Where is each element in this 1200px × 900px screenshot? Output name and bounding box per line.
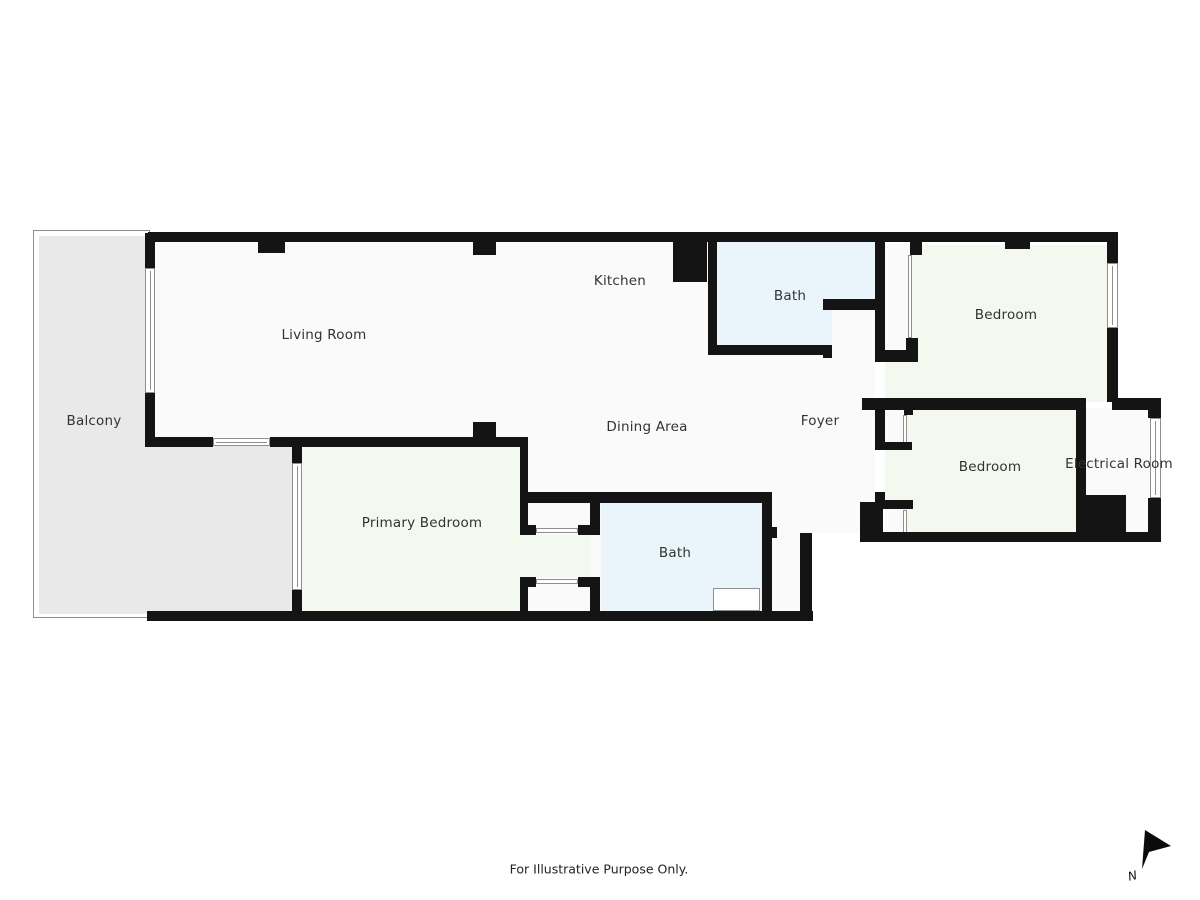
floor-bath-alcove (832, 310, 875, 362)
disclaimer-text: For Illustrative Purpose Only. (510, 862, 689, 877)
closet-front (903, 415, 907, 443)
north-arrow: N (1122, 822, 1182, 886)
room-label-balcony: Balcony (67, 413, 122, 429)
wall-segment (904, 500, 913, 509)
wall-segment (673, 235, 707, 282)
room-label-kitchen: Kitchen (594, 273, 646, 289)
room-fill-bedroom-1 (885, 245, 1107, 402)
room-label-foyer: Foyer (801, 413, 839, 429)
wall-segment (148, 232, 1118, 242)
door-balcony-slider (213, 438, 270, 446)
window-living-room-balcony (145, 268, 155, 393)
balcony-fill-extension (148, 446, 293, 612)
room-label-bedroom-2: Bedroom (959, 459, 1021, 475)
window-pane-line (216, 442, 267, 443)
wall-segment (473, 242, 496, 255)
closet-bedroom-2-bottom (885, 507, 905, 533)
bath-fixture (713, 588, 760, 611)
wall-segment (145, 233, 155, 268)
closet-front (908, 255, 912, 338)
wall-segment (823, 345, 832, 358)
room-label-living-room: Living Room (281, 327, 366, 343)
wall-segment (1005, 242, 1030, 249)
wall-segment (767, 527, 777, 538)
room-label-dining-area: Dining Area (606, 419, 687, 435)
wall-segment (708, 345, 832, 355)
room-label-primary-bedroom: Primary Bedroom (362, 515, 483, 531)
wall-segment (1112, 398, 1158, 410)
wall-segment (522, 577, 536, 587)
wall-segment (522, 525, 536, 535)
wall-segment (145, 393, 155, 438)
wall-segment (906, 338, 918, 362)
wall-segment (578, 577, 597, 587)
window-pane-line (297, 466, 298, 587)
wall-segment (145, 437, 213, 447)
north-arrow-glyph (1142, 830, 1171, 869)
wall-segment (292, 437, 528, 447)
wall-segment (522, 492, 772, 503)
wall-segment (473, 422, 496, 437)
wall-segment (708, 242, 717, 355)
closet-bedroom-2-top (885, 408, 905, 443)
wall-segment (292, 447, 302, 463)
room-label-bath-bottom: Bath (659, 545, 691, 561)
window-primary-bedroom-balcony (292, 463, 302, 590)
wall-segment (578, 525, 597, 535)
room-label-bath-top: Bath (774, 288, 806, 304)
wall-segment (875, 242, 885, 362)
wall-segment (1076, 495, 1126, 535)
wall-segment (875, 442, 912, 450)
floor-plan-canvas: For Illustrative Purpose Only. N Balcony… (0, 0, 1200, 900)
wall-segment (904, 405, 913, 415)
closet-front (536, 528, 578, 533)
wall-segment (910, 242, 922, 255)
window-pane-line (1112, 266, 1113, 325)
wall-segment (147, 611, 813, 621)
room-label-electrical-room: Electrical Room (1065, 456, 1173, 472)
closet-front (903, 510, 907, 533)
wall-segment (520, 437, 528, 535)
window-bedroom-1 (1107, 263, 1118, 328)
room-label-bedroom-1: Bedroom (975, 307, 1037, 323)
closet-front (536, 579, 578, 584)
wall-segment (292, 590, 302, 612)
wall-segment (862, 398, 1078, 410)
room-fill-dressing-hall (520, 535, 591, 577)
wall-segment (762, 493, 772, 611)
wall-segment (1107, 232, 1118, 263)
wall-segment (1107, 328, 1118, 402)
wall-segment (270, 437, 300, 447)
wall-segment (1076, 398, 1086, 495)
window-pane-line (150, 271, 151, 390)
wall-segment (258, 242, 285, 253)
north-label: N (1126, 868, 1138, 884)
closet-bedroom-1 (885, 244, 910, 350)
wall-segment (800, 533, 812, 621)
